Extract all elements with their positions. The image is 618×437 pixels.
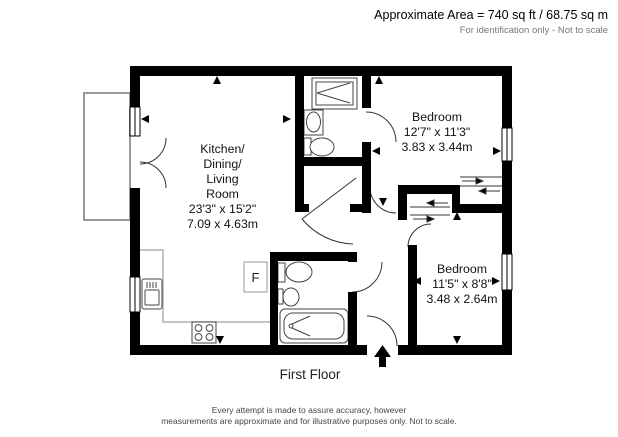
living-room-dims-imperial: 23'3" x 15'2" <box>150 202 295 217</box>
door-arc-front <box>367 316 397 346</box>
measure-arrow-living-right <box>283 115 291 123</box>
balcony-outline <box>84 93 130 220</box>
measure-arrow-living-top <box>213 76 221 84</box>
measure-arrow-bedroom1-top <box>375 76 383 84</box>
measure-arrow-hall-down <box>379 198 387 206</box>
measure-arrow-bedroom2-up <box>453 212 461 220</box>
cupboard-door-arc <box>302 219 353 244</box>
measure-arrow-living-left <box>141 115 149 123</box>
floor-title: First Floor <box>230 367 390 382</box>
disclaimer-line2: measurements are approximate and for ill… <box>109 416 509 427</box>
shower-tray-icon <box>312 78 357 109</box>
hob-icon <box>192 322 216 343</box>
shower-room-sink-icon <box>304 110 323 135</box>
living-room-dims-metric: 7.09 x 4.63m <box>150 217 295 232</box>
measure-arrow-bedroom2-bottom <box>453 336 461 344</box>
bathroom-sink-icon <box>278 288 299 306</box>
measure-arrow-living-bottom <box>216 336 224 344</box>
disclaimer: Every attempt is made to assure accuracy… <box>109 405 509 426</box>
bedroom1-label: Bedroom 12'7" x 11'3" 3.83 x 3.44m <box>377 110 497 155</box>
sliding-door-bedroom1-wardrobe <box>460 177 502 194</box>
bedroom2-dims-metric: 3.48 x 2.64m <box>402 292 522 307</box>
window-living-left <box>130 107 140 136</box>
shower-room-toilet-icon <box>304 138 334 156</box>
bedroom1-dims-imperial: 12'7" x 11'3" <box>377 125 497 140</box>
bedroom2-label: Bedroom 11'5" x 8'8" 3.48 x 2.64m <box>402 262 522 307</box>
disclaimer-line1: Every attempt is made to assure accuracy… <box>109 405 509 416</box>
window-kitchen-left <box>130 277 140 312</box>
door-arc-bedroom2 <box>408 224 431 247</box>
kitchen-sink-icon <box>142 279 162 309</box>
window-bedroom1-right <box>502 128 512 161</box>
bedroom2-name: Bedroom <box>402 262 522 277</box>
sliding-door-closet <box>410 200 450 222</box>
bedroom1-dims-metric: 3.83 x 3.44m <box>377 140 497 155</box>
bathroom-toilet-icon <box>278 262 312 282</box>
bedroom2-dims-imperial: 11'5" x 8'8" <box>402 277 522 292</box>
bedroom1-name: Bedroom <box>377 110 497 125</box>
floorplan-page: Approximate Area = 740 sq ft / 68.75 sq … <box>0 0 618 437</box>
living-room-name: Kitchen/ Dining/ Living Room <box>150 142 295 202</box>
fridge-label: F <box>244 262 267 292</box>
cupboard-door-leaf <box>302 178 356 219</box>
entry-arrow-icon <box>374 345 391 367</box>
door-arc-bathroom <box>352 262 382 292</box>
bathtub-icon <box>280 309 348 343</box>
living-room-label: Kitchen/ Dining/ Living Room 23'3" x 15'… <box>150 142 295 232</box>
